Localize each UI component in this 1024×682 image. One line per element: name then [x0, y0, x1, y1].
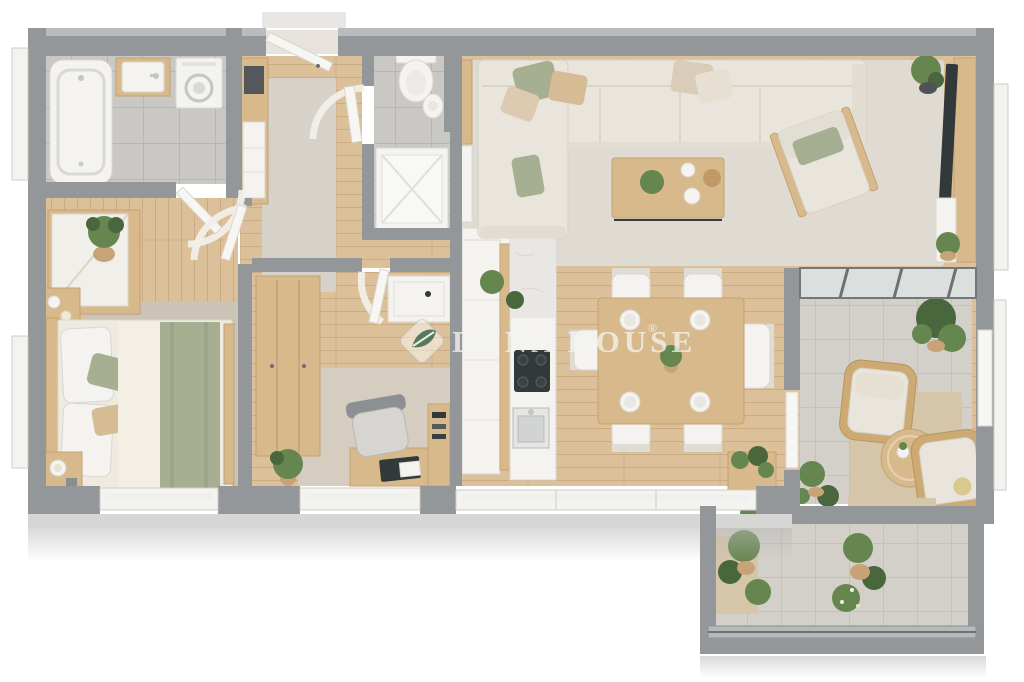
- winter-garden-glass-roof: [800, 268, 976, 298]
- bathroom-exterior-window: [12, 48, 28, 180]
- winter-garden-door: [786, 392, 798, 468]
- winter-garden-left-wall-top: [784, 268, 800, 390]
- entry-step: [262, 12, 346, 28]
- floor-plan-canvas: DUNA HOUSE ®: [0, 0, 1024, 682]
- toilet-left-wall-bottom: [362, 144, 374, 240]
- winter-garden-left-wall-bottom: [784, 470, 800, 508]
- planter-box: [728, 446, 776, 490]
- bathroom-bottom-wall: [28, 182, 176, 198]
- hall-living-divider: [444, 56, 456, 132]
- study-right-wall: [450, 240, 462, 486]
- vanity-washbasin: [116, 58, 170, 96]
- toilet-bottom-wall: [362, 228, 462, 240]
- book-shelf: [428, 404, 450, 486]
- white-side-table: [388, 276, 450, 322]
- dining-table: [598, 298, 744, 424]
- study-top-wall-left: [252, 258, 362, 272]
- shower-tray: [376, 148, 448, 230]
- watermark-registered-mark: ®: [648, 321, 661, 335]
- bedroom-exterior-window: [12, 336, 28, 468]
- bathroom-right-wall: [226, 28, 242, 198]
- coffee-table: [612, 158, 724, 220]
- bedroom-right-wall: [238, 264, 252, 486]
- kitchen-sink: [513, 408, 549, 448]
- hall-cabinet-with-mirror: [240, 58, 268, 204]
- study-wardrobe: [256, 276, 320, 456]
- washing-machine: [176, 58, 222, 108]
- living-exterior-window: [994, 84, 1008, 270]
- winter-garden-exterior-window: [994, 300, 1006, 490]
- bidet: [423, 94, 443, 118]
- entry-hall: [240, 58, 268, 204]
- bathtub: [50, 60, 112, 184]
- toilet-left-wall-top: [362, 56, 374, 86]
- winter-garden-right-door: [978, 330, 992, 426]
